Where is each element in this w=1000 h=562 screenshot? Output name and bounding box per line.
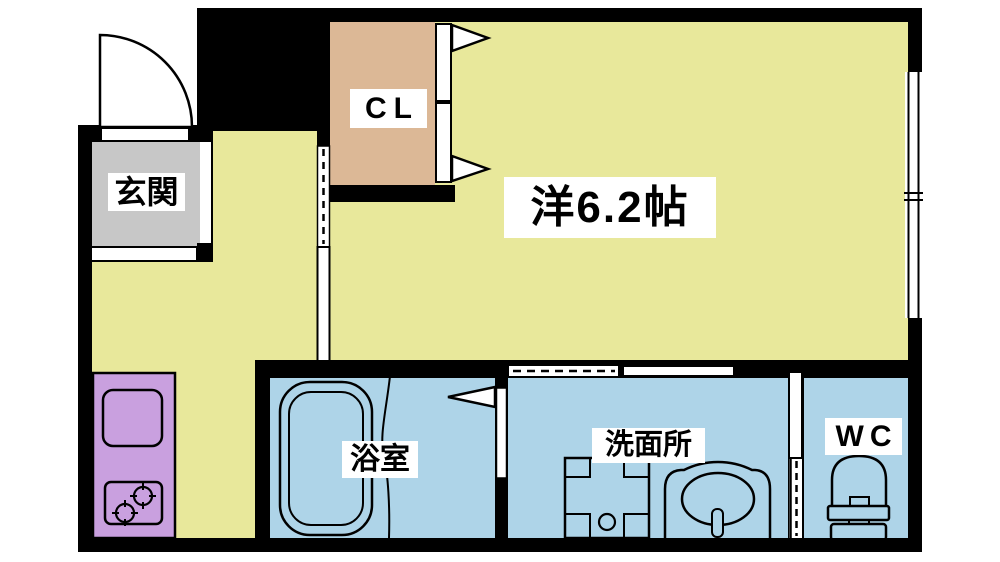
partition-panel	[318, 247, 330, 361]
bathroom-door-arrow	[448, 387, 495, 407]
toilet	[828, 456, 889, 540]
closet-door-arrow-bottom	[452, 156, 488, 181]
wc-label: WC	[825, 418, 902, 455]
closet-label: CL	[350, 89, 427, 128]
main-room-label: 洋6.2帖	[504, 177, 716, 238]
closet-label-text: CL	[365, 94, 419, 124]
main-room-label-text: 洋6.2帖	[530, 186, 689, 230]
bathroom-door-strip	[497, 388, 507, 478]
bathroom-label-text: 浴室	[350, 445, 410, 475]
genkan-label-text: 玄関	[114, 176, 178, 208]
wc-label-text: WC	[836, 422, 898, 452]
vanity-sink	[665, 462, 770, 538]
washing-machine-pan	[565, 458, 649, 538]
floorplan: 玄関 CL 洋6.2帖 浴室 洗面所 WC	[0, 0, 1000, 562]
closet-door-arrow-top	[452, 25, 488, 51]
genkan-label: 玄関	[108, 173, 185, 211]
washroom-label-text: 洗面所	[605, 431, 692, 460]
fixtures-layer	[0, 0, 1000, 562]
bathroom-label: 浴室	[342, 441, 418, 478]
partition-cap	[317, 131, 330, 146]
washroom-label: 洗面所	[592, 428, 705, 463]
wc-door-panel	[789, 372, 802, 458]
vanity-faucet	[712, 509, 723, 537]
entrance-door-arc	[100, 35, 192, 127]
